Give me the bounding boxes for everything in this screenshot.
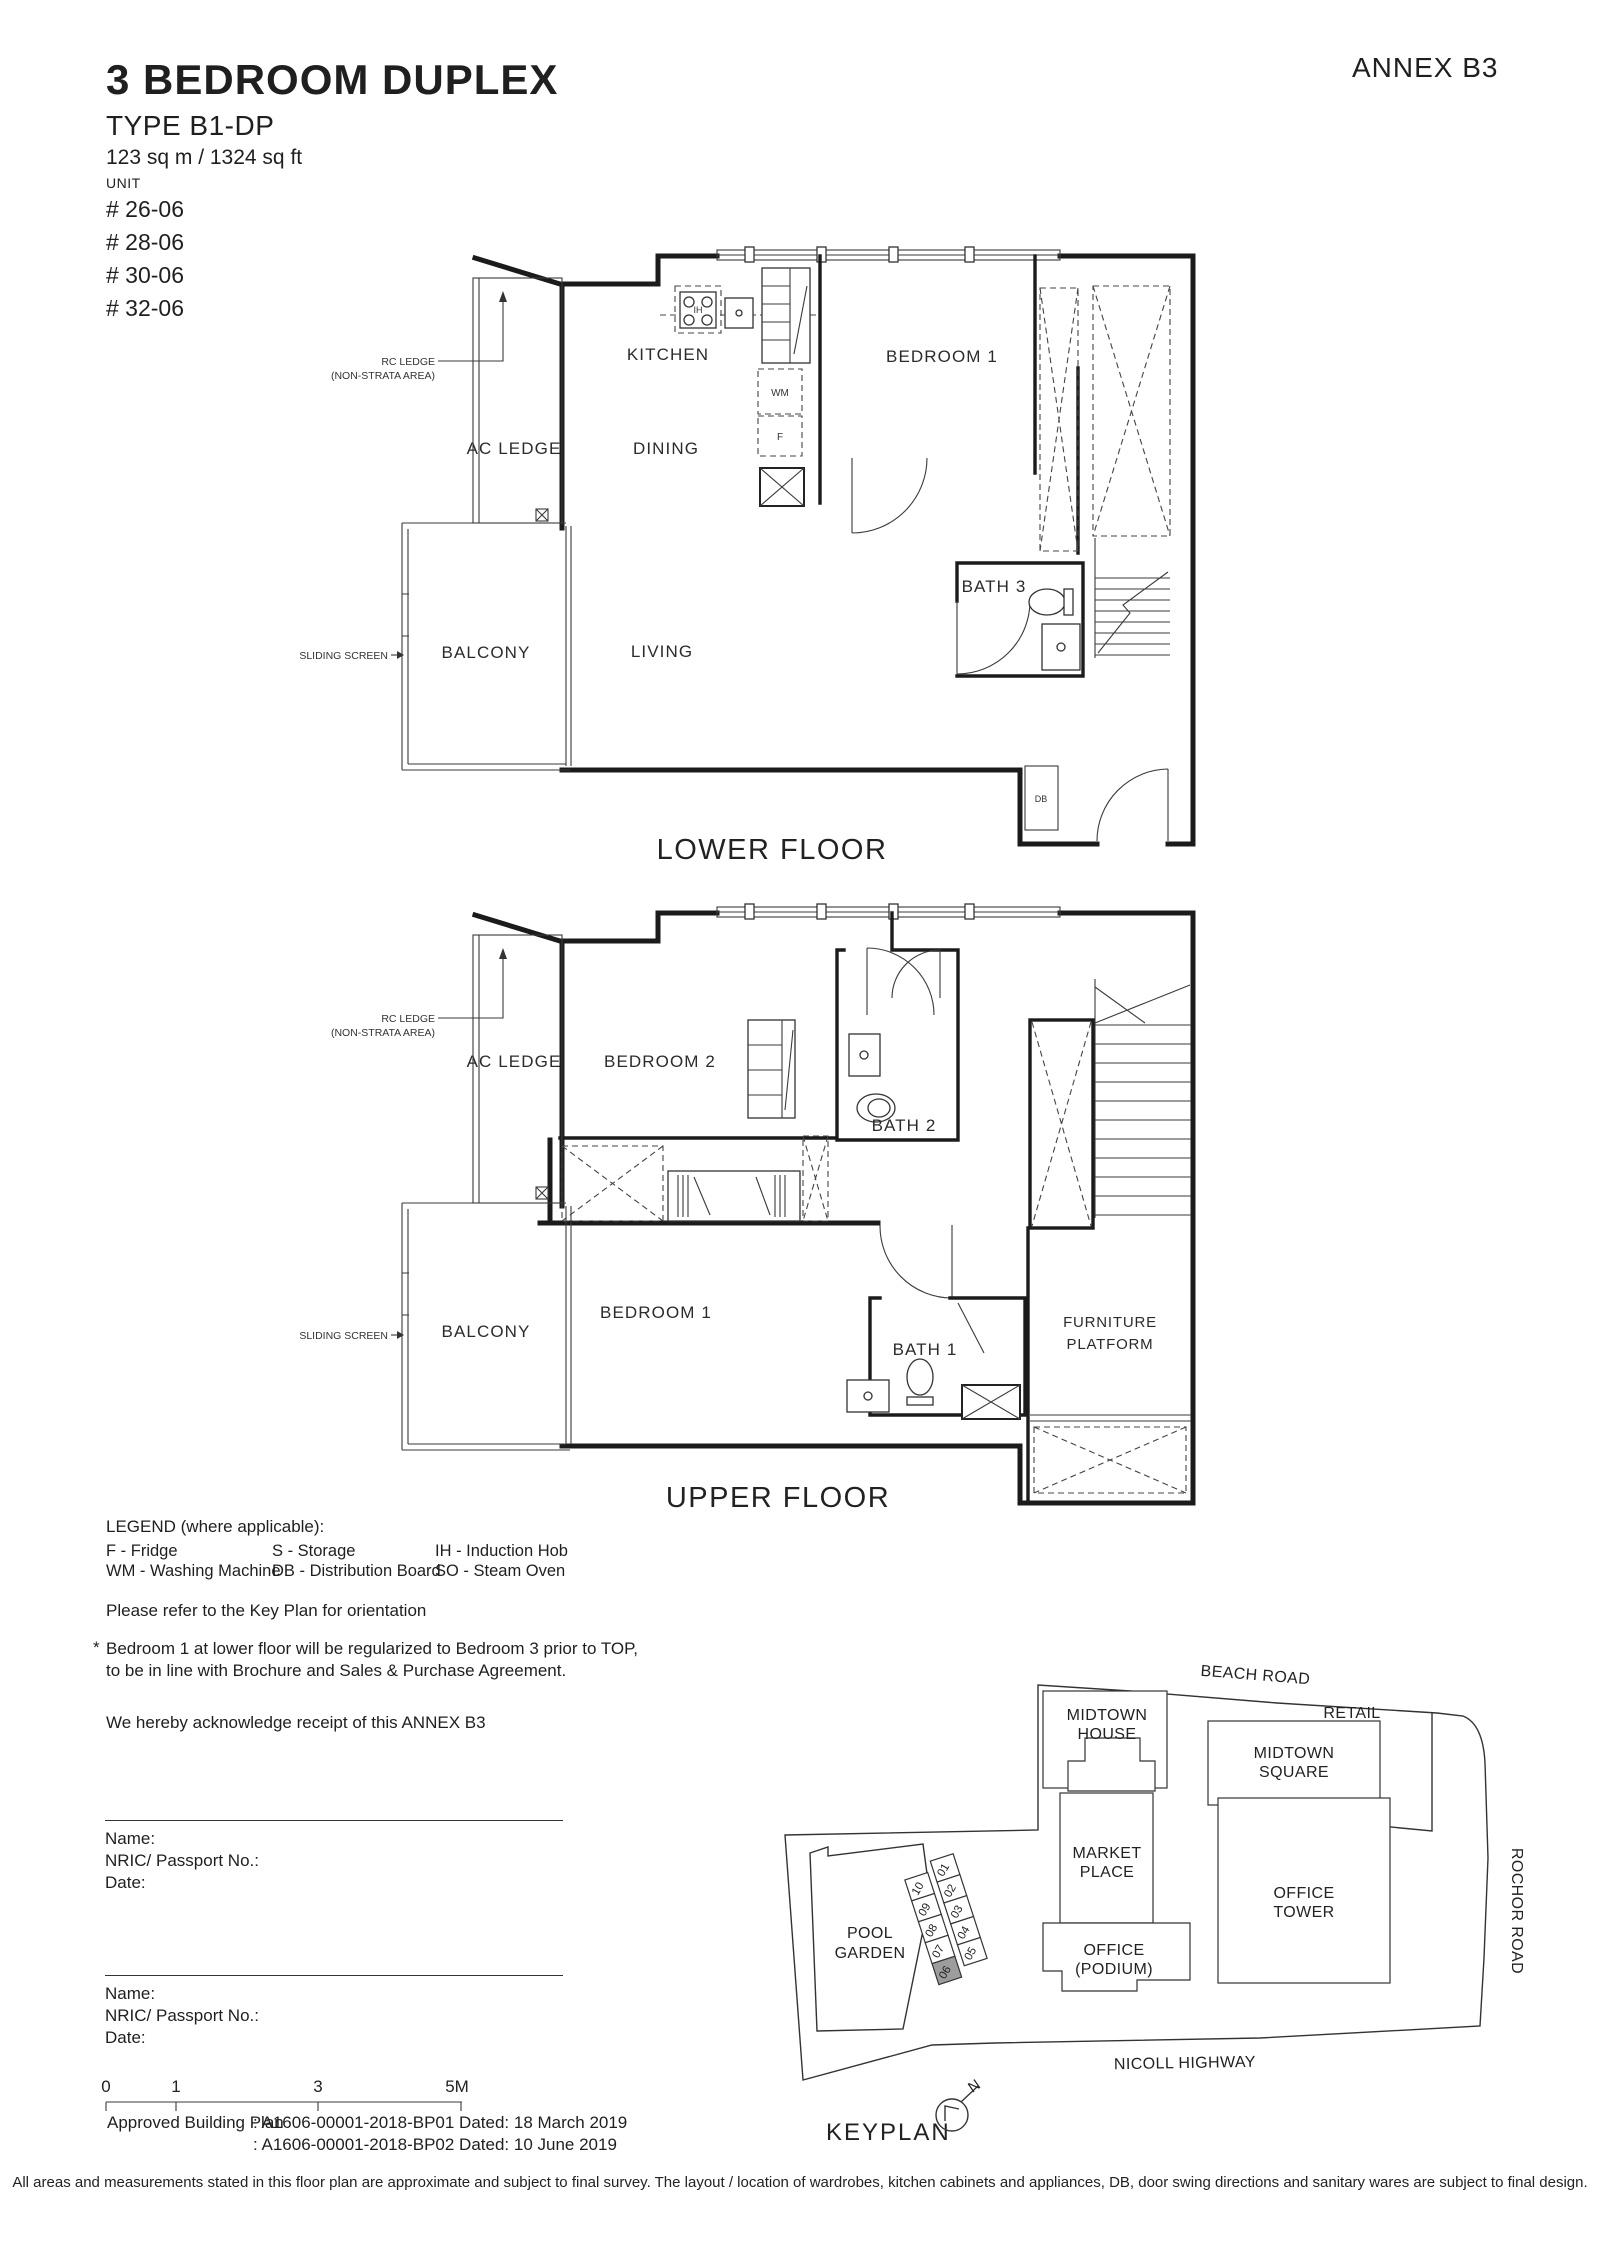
nicoll-highway-label: NICOLL HIGHWAY	[1114, 2054, 1256, 2073]
lower-doors	[852, 458, 1168, 841]
rc-ledge-label: RC LEDGE	[381, 1013, 435, 1025]
legend-item: DB - Distribution Board	[272, 1561, 441, 1581]
upper-floor-caption: UPPER FLOOR	[666, 1482, 890, 1514]
fridge-label: F	[777, 432, 783, 443]
scale-tick: 0	[101, 2077, 110, 2096]
lower-closets	[1040, 286, 1170, 551]
room-label-bedroom1: BEDROOM 1	[886, 347, 998, 366]
keyplan-caption: KEYPLAN	[826, 2119, 951, 2146]
room-label-bedroom2: BEDROOM 2	[604, 1052, 716, 1071]
scale-tick: 5M	[445, 2077, 469, 2096]
upper-floor-plan: AC LEDGE BEDROOM 2 BATH 2 BEDROOM 1 BATH…	[270, 815, 1200, 1520]
lower-stairs-icon	[1095, 538, 1170, 658]
room-label-balcony: BALCONY	[442, 1322, 531, 1341]
date-field-label: Date:	[105, 2027, 563, 2049]
office-podium-label: (PODIUM)	[1075, 1961, 1153, 1978]
midtown-square-label: MIDTOWN	[1254, 1745, 1335, 1762]
toilet-icon	[1029, 589, 1065, 615]
room-label-dining: DINING	[633, 439, 699, 458]
rc-ledge-note: (NON-STRATA AREA)	[331, 1027, 435, 1039]
kitchen-fittings: IH WM F	[660, 268, 816, 506]
wardrobe-icon	[748, 1020, 795, 1118]
nric-field-label: NRIC/ Passport No.:	[105, 2005, 563, 2027]
upper-doors	[880, 1225, 952, 1298]
orientation-note: Please refer to the Key Plan for orienta…	[106, 1600, 426, 1622]
legend-item: S - Storage	[272, 1541, 441, 1561]
washing-machine-label: WM	[771, 388, 789, 399]
legend-col2: S - Storage DB - Distribution Board	[272, 1541, 441, 1581]
beach-road-label: BEACH ROAD	[1200, 1663, 1311, 1689]
office-tower-label: OFFICE	[1273, 1885, 1334, 1902]
room-label-furniture-1: FURNITURE	[1063, 1314, 1157, 1331]
room-label-bedroom1: BEDROOM 1	[600, 1303, 712, 1322]
signature-block-2: Name: NRIC/ Passport No.: Date:	[105, 1975, 563, 2049]
room-label-balcony: BALCONY	[442, 643, 531, 662]
room-label-bath1: BATH 1	[893, 1340, 958, 1359]
scale-tick: 1	[171, 2077, 180, 2096]
market-place-label: MARKET	[1072, 1845, 1141, 1862]
tower-footprint: 01 02 03 04 05 10 09 08 07 06	[902, 1854, 990, 1985]
room-label-furniture-2: PLATFORM	[1067, 1336, 1154, 1353]
lower-floor-plan: IH WM F	[270, 158, 1200, 873]
sliding-screen-label: SLIDING SCREEN	[299, 650, 388, 662]
upper-void	[1030, 1020, 1093, 1228]
rochor-road-label: ROCHOR ROAD	[1508, 1848, 1525, 1974]
rc-ledge-note: (NON-STRATA AREA)	[331, 370, 435, 382]
unit-number: # 32-06	[106, 292, 184, 325]
acknowledge-note: We hereby acknowledge receipt of this AN…	[106, 1712, 486, 1734]
disclaimer: All areas and measurements stated in thi…	[0, 2174, 1600, 2191]
upper-closets	[562, 1136, 828, 1221]
unit-list: # 26-06 # 28-06 # 30-06 # 32-06	[106, 193, 184, 325]
annex-label: ANNEX B3	[1352, 52, 1499, 84]
room-label-bath2: BATH 2	[872, 1116, 937, 1135]
regularize-star: *	[93, 1637, 100, 1659]
legend-col1: F - Fridge WM - Washing Machine	[106, 1541, 281, 1581]
bath2-fittings	[748, 948, 940, 1122]
upper-walls	[475, 904, 1193, 1503]
scale-tick: 3	[313, 2077, 322, 2096]
furniture-platform	[1028, 1228, 1191, 1501]
pool-garden-label: GARDEN	[835, 1945, 906, 1962]
legend-item: SO - Steam Oven	[435, 1561, 568, 1581]
room-label-ac-ledge: AC LEDGE	[467, 439, 562, 458]
regularize-note: Bedroom 1 at lower floor will be regular…	[106, 1638, 638, 1682]
market-place-label: PLACE	[1080, 1864, 1134, 1881]
rc-ledge-label: RC LEDGE	[381, 356, 435, 368]
name-field-label: Name:	[105, 1983, 563, 2005]
legend-col3: IH - Induction Hob SO - Steam Oven	[435, 1541, 568, 1581]
retail-label: RETAIL	[1323, 1705, 1380, 1722]
room-label-kitchen: KITCHEN	[627, 345, 709, 364]
legend-item: WM - Washing Machine	[106, 1561, 281, 1581]
keyplan: 01 02 03 04 05 10 09 08 07 06 MIDTOWN HO…	[740, 1628, 1600, 2158]
lower-walls	[475, 247, 1193, 844]
room-label-bath3: BATH 3	[962, 577, 1027, 596]
floor-plan-page: 3 BEDROOM DUPLEX TYPE B1-DP 123 sq m / 1…	[0, 0, 1600, 2264]
unit-number: # 28-06	[106, 226, 184, 259]
nric-field-label: NRIC/ Passport No.:	[105, 1850, 563, 1872]
type-label: TYPE B1-DP	[106, 110, 274, 142]
approval-lines: : A1606-00001-2018-BP01 Dated: 18 March …	[253, 2112, 627, 2156]
midtown-house-label: HOUSE	[1078, 1726, 1137, 1743]
north-label: N	[965, 2076, 984, 2096]
pool-garden-label: POOL	[847, 1925, 893, 1942]
signature-block-1: Name: NRIC/ Passport No.: Date:	[105, 1820, 563, 1894]
room-label-living: LIVING	[631, 642, 693, 661]
induction-hob-icon: IH	[694, 305, 703, 315]
signature-line[interactable]	[105, 1975, 563, 1976]
unit-number: # 30-06	[106, 259, 184, 292]
legend-item: F - Fridge	[106, 1541, 281, 1561]
office-podium-label: OFFICE	[1083, 1942, 1144, 1959]
toilet-icon	[907, 1359, 933, 1395]
unit-heading: UNIT	[106, 175, 141, 191]
page-title: 3 BEDROOM DUPLEX	[106, 56, 558, 104]
sliding-screen-label: SLIDING SCREEN	[299, 1330, 388, 1342]
room-label-ac-ledge: AC LEDGE	[467, 1052, 562, 1071]
db-label: DB	[1035, 794, 1048, 804]
upper-stairs-icon	[1095, 979, 1191, 1218]
date-field-label: Date:	[105, 1872, 563, 1894]
lower-ac-ledge	[473, 278, 562, 523]
legend-item: IH - Induction Hob	[435, 1541, 568, 1561]
unit-number: # 26-06	[106, 193, 184, 226]
office-tower-label: TOWER	[1273, 1904, 1334, 1921]
cabinet-icon	[762, 268, 810, 363]
name-field-label: Name:	[105, 1828, 563, 1850]
midtown-square-label: SQUARE	[1259, 1764, 1329, 1781]
legend-title: LEGEND (where applicable):	[106, 1516, 324, 1537]
signature-line[interactable]	[105, 1820, 563, 1821]
midtown-house-label: MIDTOWN	[1067, 1707, 1148, 1724]
